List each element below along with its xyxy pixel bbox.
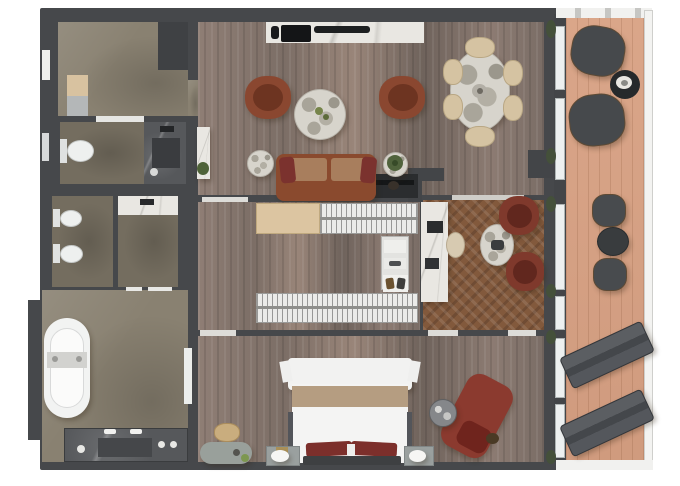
cooktop [281,25,311,42]
window-plant-4 [546,284,556,298]
vanity-basin [98,438,152,457]
balcony-railing-bottom [556,460,653,470]
bidet-tank [53,209,60,227]
laptop [427,221,443,233]
left-window [42,133,49,161]
sofa-pillow-right [360,156,378,183]
bathtub-basin [50,328,84,408]
kitchen-shelf [314,26,370,33]
bed-pillow-left [306,441,353,457]
railing-post-1 [575,8,581,18]
threshold-shower-a [126,287,142,291]
coffee-table-plant-1 [315,107,323,115]
guest-toilet-tank [60,139,67,163]
dining-chair-left-2 [443,94,463,120]
balcony-glass-dining-1 [555,26,565,90]
wc-room-floor [52,196,113,287]
bench-item-dark [233,449,240,456]
threshold-den-bedroom-1 [428,330,458,336]
kitchen-item [271,26,279,39]
balcony-round-table [597,227,629,256]
dining-chair-right-1 [503,60,523,86]
window-plant-3 [546,196,556,212]
balcony-railing-right [644,10,653,462]
guest-shower-bench [152,138,180,168]
threshold-den-bedroom-2 [508,330,536,336]
bidet-bowl [60,210,82,227]
bed-pillow-right [351,441,398,457]
window-plant-1 [546,20,556,38]
master-bath-door [184,348,192,404]
closet-rod-bottom [256,306,418,309]
balcony-dining-chair-top [592,194,626,227]
watch-item [389,261,401,266]
side-table-left [247,150,274,177]
bed-headboard [303,456,401,465]
lamp-left [271,450,289,462]
railing-post-2 [605,8,611,18]
entry-door [42,50,50,80]
window-plant-2 [546,148,556,164]
threshold-closet-bedroom [200,330,236,336]
balcony-glass-den-1 [555,204,565,290]
guest-toilet-bowl [67,140,94,162]
floor-item [486,433,499,444]
shoe-2 [396,277,405,289]
dining-chair-top [465,37,495,58]
study-chair-top-cushion [507,204,532,228]
balcony-glass-dining-2 [555,98,565,180]
sofa-pillow-left [279,156,297,183]
threshold-shower-b [148,287,172,291]
bed-blanket-band [292,386,408,407]
guest-shower-fixture [160,126,174,132]
dining-chair-bottom [465,126,495,147]
balcony-glass-den-2 [555,296,565,330]
vanity-knob-2 [158,441,165,448]
armchair-left-cushion [253,84,283,111]
bedside-round-table [429,399,457,427]
entry-notch-wall [158,22,188,70]
railing-post-3 [635,8,641,18]
lamp-right [409,450,426,462]
coffee-table-plant-2 [323,114,329,120]
threshold-living-closet [202,197,248,202]
wc-toilet-tank [53,244,60,263]
vanity-tap-2 [130,429,142,434]
plant-core [392,160,398,166]
vanity-tap-1 [104,429,116,434]
vanity-knob-3 [170,441,177,448]
balcony-dining-chair-bottom [593,258,627,291]
armchair-right-cushion [388,84,418,111]
threshold-entry-bath [96,116,144,122]
bathtub-knob-2 [76,356,82,362]
bench-item-green [241,454,249,462]
window-plant-6 [546,450,556,464]
closet-dresser [256,203,320,234]
dining-chair-right-2 [503,95,523,121]
entry-living-opening [188,80,198,116]
desk-papers [425,258,439,269]
bed-pillow-gap [347,444,355,455]
study-table-item [491,240,504,250]
floor-plan-canvas [0,0,680,486]
balcony-plate-food [621,80,628,86]
shoe-1 [385,277,394,289]
guest-shower-drain [150,168,158,176]
window-plant-5 [546,330,556,344]
shower-fixture [140,199,154,205]
study-desk [421,202,448,302]
console-plant [197,162,209,175]
bathtub-knob-1 [52,356,58,362]
accessory-tray-1 [384,240,406,253]
closet-rod-top [320,217,418,220]
study-chair-bottom-cushion [513,260,537,284]
dining-chair-left-1 [443,59,463,85]
accent-table [388,181,399,190]
pouf [214,423,240,442]
vanity-knob-1 [77,445,85,453]
wc-toilet-bowl [60,245,83,263]
desk-chair [446,232,465,258]
dining-centerpiece-core [477,88,483,94]
entry-closet-door [67,96,88,116]
